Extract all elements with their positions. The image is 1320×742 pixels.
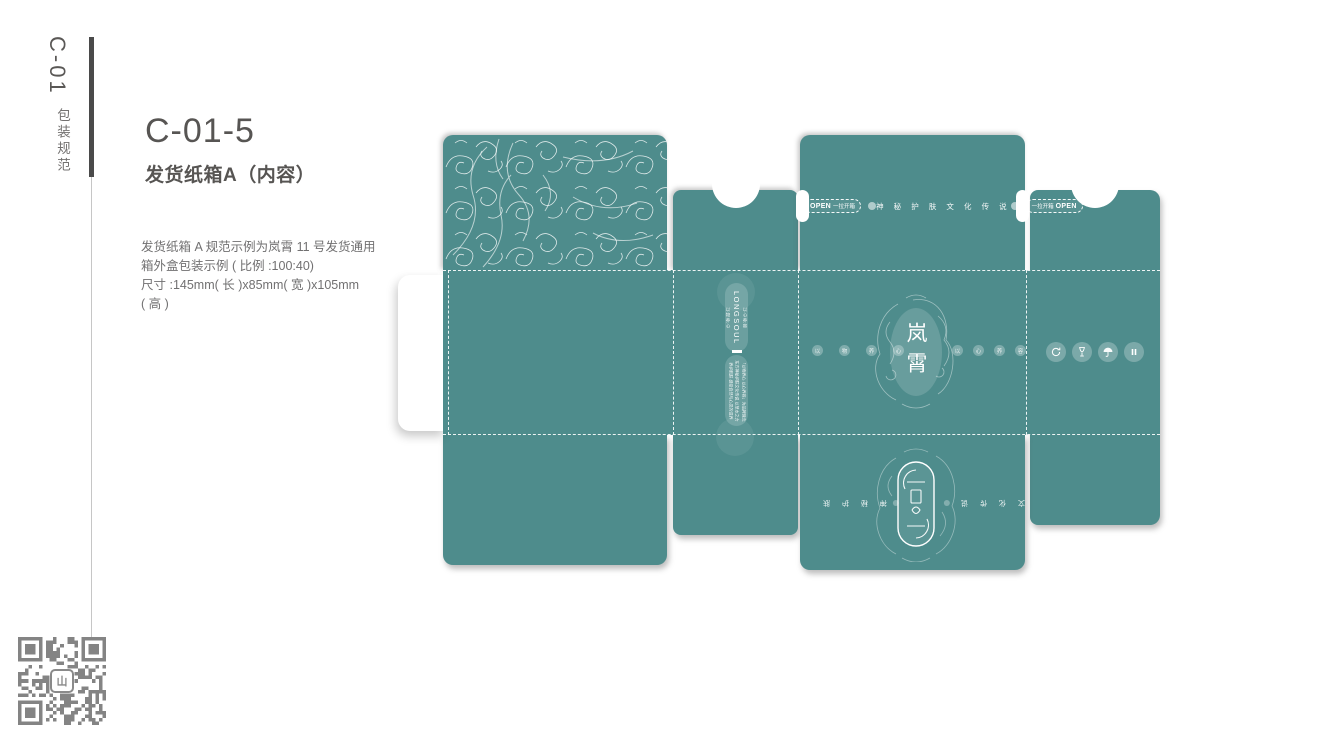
handle-with-care-icon (1124, 342, 1144, 362)
fold-line-top (443, 270, 1160, 271)
sidebar-rule-thick (89, 37, 94, 177)
bottom-slogan-text: 神 秘 护 肤 (818, 498, 887, 508)
story-line: 「以物养心 以心养容」为品牌理念 (740, 360, 747, 421)
seal-dot-icon: 容 (1015, 345, 1026, 356)
qr-code: 山 (18, 637, 106, 725)
dieline-glue-flap (398, 275, 445, 431)
keep-dry-umbrella-icon (1098, 342, 1118, 362)
capsule-divider (732, 350, 742, 353)
thumb-notch-left (712, 160, 760, 208)
page: C-01 包装规范 C-01-5 发货纸箱A（内容） 发货纸箱 A 规范示例为岚… (0, 0, 1320, 742)
page-subtitle: 发货纸箱A（内容） (145, 160, 315, 187)
open-label: OPEN (1056, 203, 1077, 210)
seal-dot-icon: 以 (952, 345, 963, 356)
seal-dot-icon: 心 (893, 345, 904, 356)
open-capsule-right: 一拉开箱 OPEN (1026, 199, 1083, 213)
slogan-right: 以心养容 (742, 307, 748, 329)
story-line: 养护肌肤 感受自然与心灵的滋养 (727, 360, 734, 421)
seal-dot-icon: 养 (866, 345, 877, 356)
dieline-top-flap-illustration (443, 135, 667, 271)
seal-badge-icon (944, 500, 950, 506)
fold-line-v2 (798, 270, 799, 435)
sidebar-rule-thin (91, 177, 92, 639)
bottom-slogan-left: 神 秘 护 肤 (818, 498, 899, 508)
spec-line: ( 高 ) (141, 295, 377, 314)
fragile-glass-icon (1072, 342, 1092, 362)
section-code: C-01 (44, 36, 70, 96)
qr-center-logo: 山 (50, 669, 74, 693)
slogan-left: 以物养心 (725, 307, 731, 329)
brand-capsule: 以物养心 LONGSOUL 以心养容 (725, 283, 748, 352)
strip-slogan: 神 秘 护 肤 文 化 传 说 (876, 201, 1011, 212)
spec-line: 尺寸 :145mm( 长 )x85mm( 宽 )x105mm (141, 276, 377, 295)
section-label: 包装规范 (52, 108, 72, 174)
bottom-slogan-right: 文 化 传 说 (944, 498, 1025, 508)
open-label: OPEN (810, 203, 831, 210)
fold-line-v1 (673, 270, 674, 435)
fold-line-glue (448, 270, 449, 435)
seal-dot-icon: 养 (994, 345, 1005, 356)
seal-dot-icon: 心 (973, 345, 984, 356)
dieline-bottom-flap-left (443, 435, 667, 565)
fold-line-bottom (443, 434, 1160, 435)
tear-strip: OPEN 一拉开箱 神 秘 护 肤 文 化 传 说 一拉开箱 OPEN (800, 197, 1025, 215)
pull-tab-icon (1016, 190, 1029, 222)
story-capsule: 「以物养心 以心养容」为品牌理念 东方神秘护肤文化传说 以草本之力 养护肌肤 感… (725, 355, 748, 426)
spec-line: 发货纸箱 A 规范示例为岚霄 11 号发货通用 (141, 238, 377, 257)
open-capsule-left: OPEN 一拉开箱 (804, 199, 861, 213)
story-text: 「以物养心 以心养容」为品牌理念 东方神秘护肤文化传说 以草本之力 养护肌肤 感… (727, 360, 747, 421)
brand-hanzi: 岚霄 (901, 322, 931, 382)
emblem-dot-row-left: 以 物 养 心 (812, 345, 904, 356)
seal-dot-icon: 物 (839, 345, 850, 356)
strip-middle: 神 秘 护 肤 文 化 传 说 (861, 201, 1026, 212)
seal-badge-icon (868, 202, 876, 210)
brand-name: LONGSOUL (732, 291, 741, 345)
care-icon-row (1046, 342, 1144, 362)
spec-line: 箱外盒包装示例 ( 比例 :100:40) (141, 257, 377, 276)
spec-description: 发货纸箱 A 规范示例为岚霄 11 号发货通用 箱外盒包装示例 ( 比例 :10… (141, 238, 377, 314)
pull-tab-icon (796, 190, 809, 222)
seal-badge-icon (893, 500, 899, 506)
bottom-slogan-text: 文 化 传 说 (956, 498, 1025, 508)
cloud-illustration (443, 135, 667, 271)
fold-line-v3 (1026, 270, 1027, 435)
page-title: C-01-5 (145, 112, 255, 151)
story-line: 东方神秘护肤文化传说 以草本之力 (733, 360, 740, 421)
emblem-dot-row-right: 以 心 养 容 (952, 345, 1026, 356)
open-cn-label: 一拉开箱 (1032, 202, 1054, 210)
seal-dot-icon: 以 (812, 345, 823, 356)
open-cn-label: 一拉开箱 (833, 202, 855, 210)
recycle-icon (1046, 342, 1066, 362)
